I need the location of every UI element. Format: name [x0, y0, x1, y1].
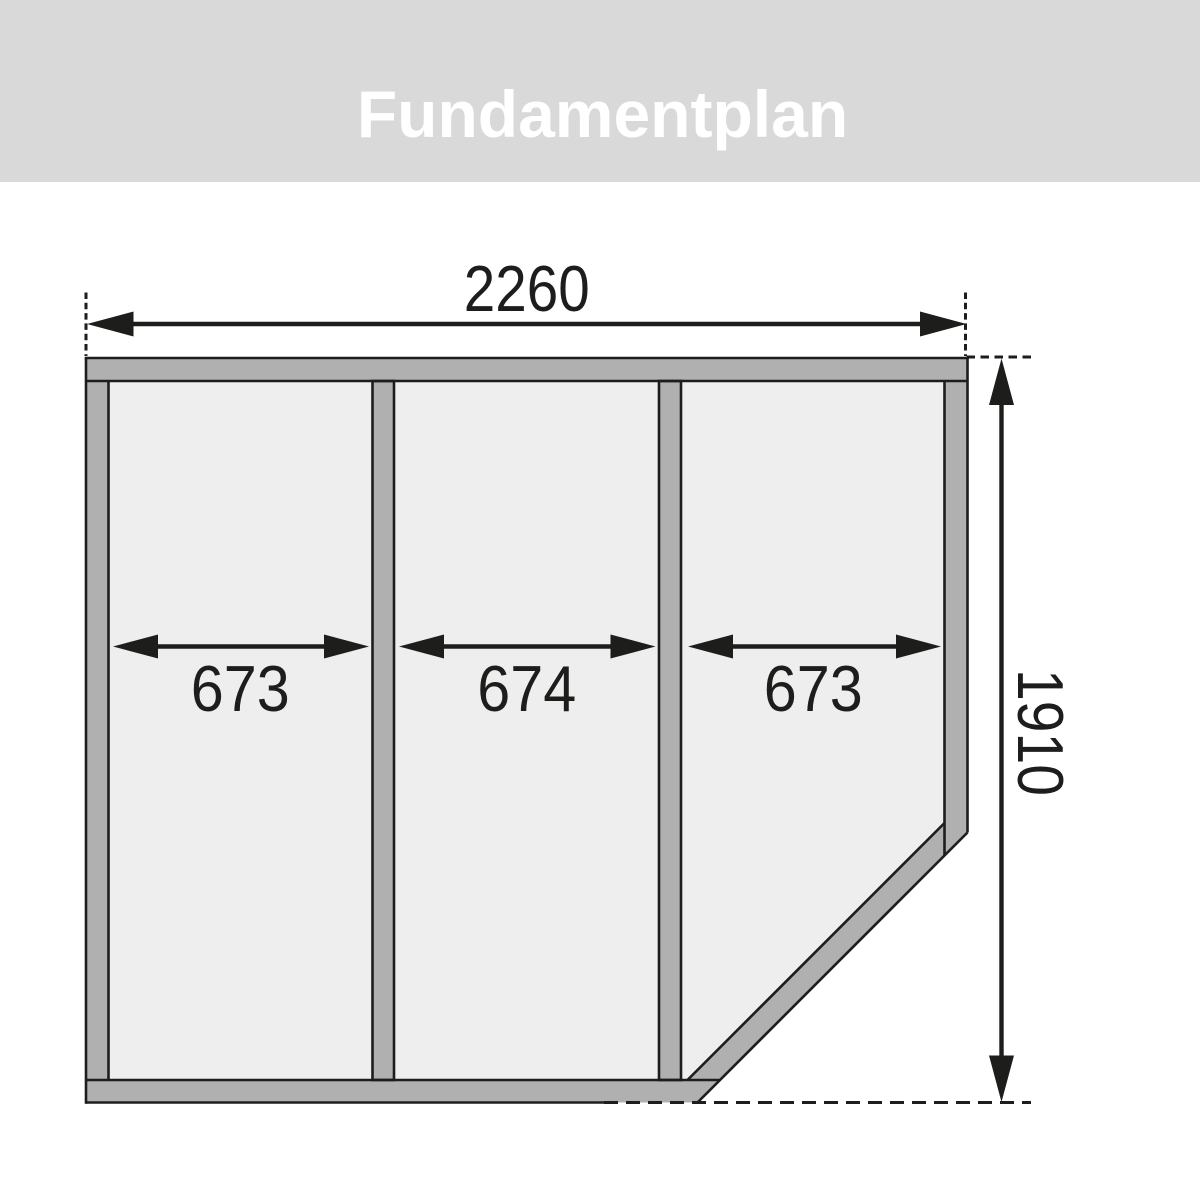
svg-text:674: 674 — [477, 652, 576, 725]
svg-text:2260: 2260 — [464, 252, 590, 325]
svg-text:1910: 1910 — [1004, 669, 1077, 796]
svg-text:673: 673 — [191, 652, 290, 725]
svg-text:Fundamentplan: Fundamentplan — [357, 77, 848, 151]
svg-text:673: 673 — [764, 652, 863, 725]
